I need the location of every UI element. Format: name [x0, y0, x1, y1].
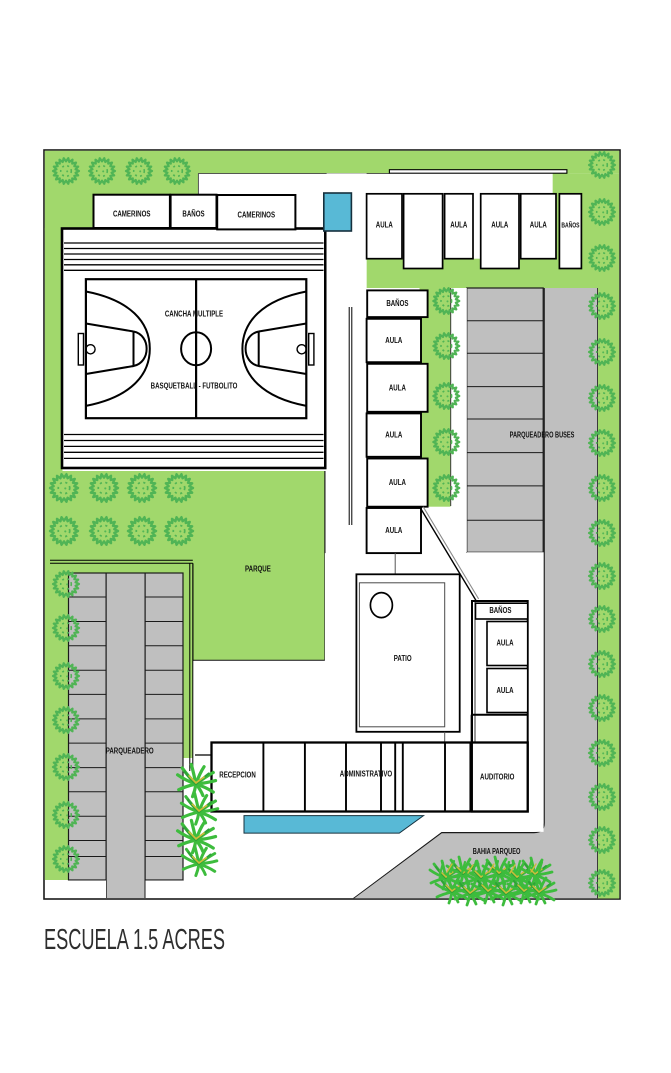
- svg-text:CAMERINOS: CAMERINOS: [238, 209, 276, 219]
- svg-text:AULA: AULA: [491, 219, 509, 229]
- svg-text:AULA: AULA: [496, 685, 514, 695]
- svg-text:PARQUEADERO: PARQUEADERO: [106, 745, 154, 755]
- svg-text:PARQUE: PARQUE: [245, 564, 271, 574]
- svg-text:PATIO: PATIO: [394, 653, 412, 663]
- svg-text:AULA: AULA: [530, 219, 548, 229]
- svg-text:RECEPCION: RECEPCION: [219, 770, 255, 780]
- svg-text:AULA: AULA: [385, 430, 403, 440]
- svg-text:BAHIA PARQUEO: BAHIA PARQUEO: [473, 848, 521, 856]
- svg-text:AULA: AULA: [376, 219, 394, 229]
- svg-text:BASQUETBALL - FUTBOLITO: BASQUETBALL - FUTBOLITO: [151, 381, 238, 391]
- svg-text:AULA: AULA: [389, 477, 407, 487]
- svg-text:BAÑOS: BAÑOS: [182, 209, 204, 219]
- svg-text:CAMERINOS: CAMERINOS: [113, 209, 151, 219]
- svg-text:AUDITORIO: AUDITORIO: [480, 772, 515, 782]
- svg-text:BAÑOS: BAÑOS: [561, 222, 579, 230]
- svg-text:PARQUEADERO BUSES: PARQUEADERO BUSES: [510, 432, 575, 440]
- svg-text:CANCHA MULTIPLE: CANCHA MULTIPLE: [165, 309, 223, 319]
- svg-text:BAÑOS: BAÑOS: [489, 605, 511, 615]
- svg-text:AULA: AULA: [389, 382, 407, 392]
- svg-text:AULA: AULA: [496, 638, 514, 648]
- svg-text:AULA: AULA: [385, 525, 403, 535]
- svg-text:ADMINISTRATIVO: ADMINISTRATIVO: [340, 769, 393, 779]
- svg-text:AULA: AULA: [385, 335, 403, 345]
- svg-text:AULA: AULA: [450, 219, 468, 229]
- svg-text:ESCUELA 1.5 ACRES: ESCUELA 1.5 ACRES: [44, 924, 225, 956]
- svg-text:BAÑOS: BAÑOS: [386, 298, 408, 308]
